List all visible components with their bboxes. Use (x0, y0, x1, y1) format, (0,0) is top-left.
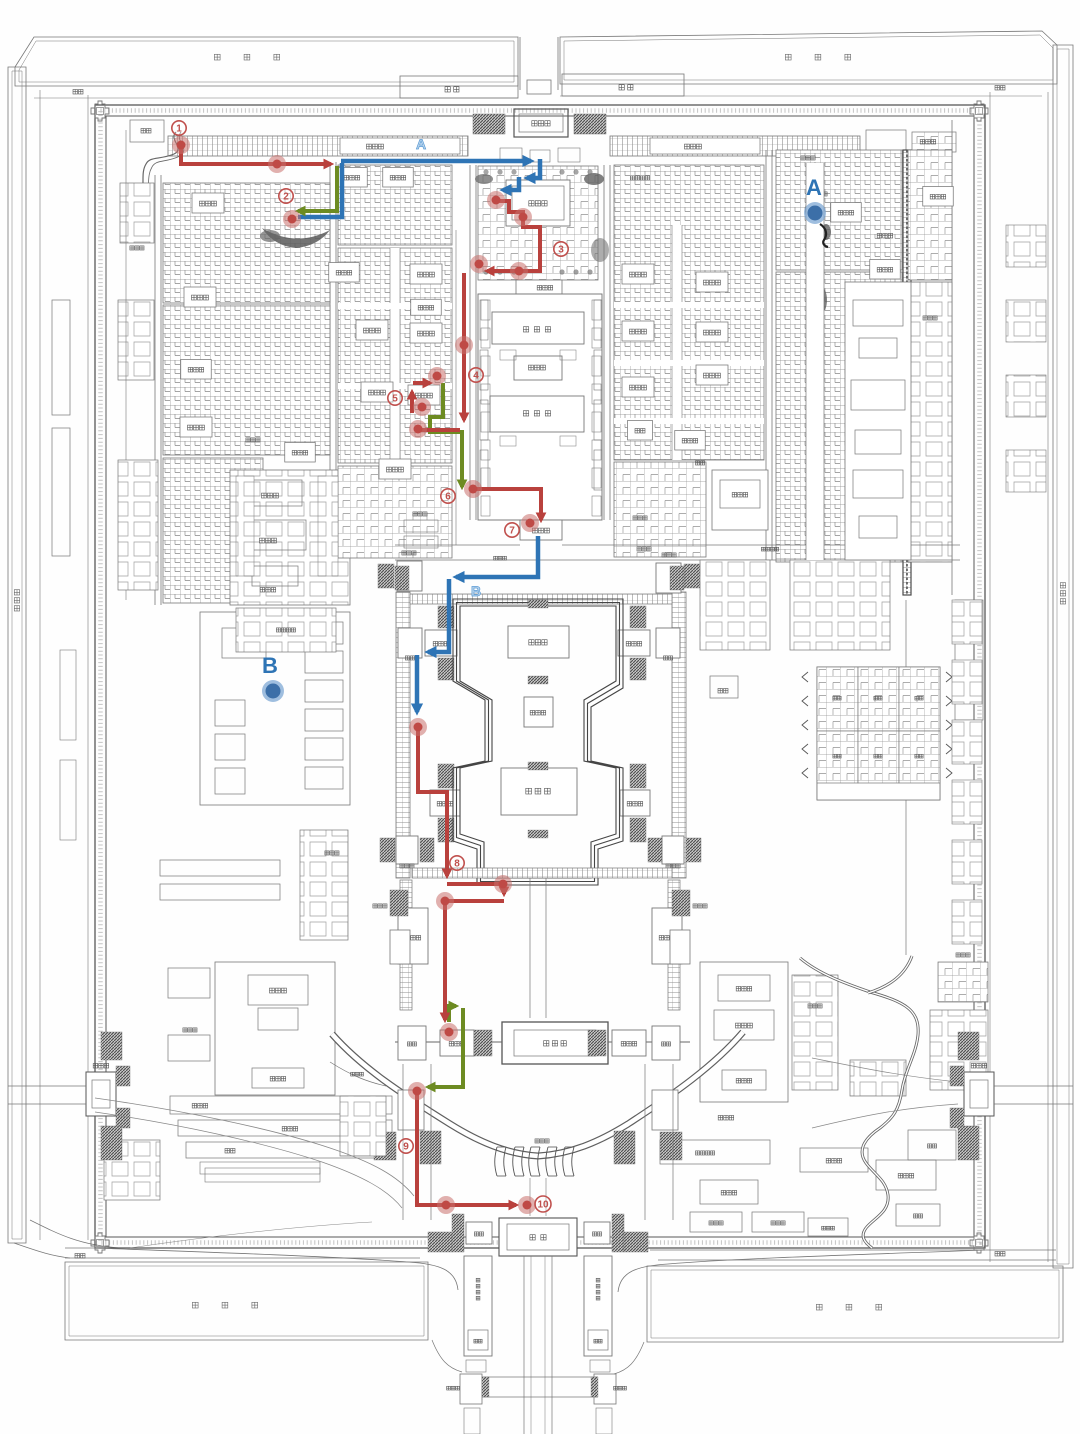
svg-text:B: B (471, 583, 481, 599)
svg-text:3: 3 (558, 244, 564, 255)
svg-text:9: 9 (403, 1141, 409, 1152)
svg-text:5: 5 (392, 393, 398, 404)
svg-text:A: A (806, 175, 822, 200)
svg-text:4: 4 (473, 370, 479, 381)
svg-text:6: 6 (445, 491, 451, 502)
svg-text:1: 1 (176, 123, 182, 134)
svg-text:7: 7 (509, 525, 515, 536)
svg-text:2: 2 (283, 191, 289, 202)
svg-text:A: A (416, 136, 426, 152)
svg-text:B: B (262, 653, 278, 678)
svg-text:10: 10 (537, 1199, 549, 1210)
svg-text:8: 8 (454, 858, 460, 869)
